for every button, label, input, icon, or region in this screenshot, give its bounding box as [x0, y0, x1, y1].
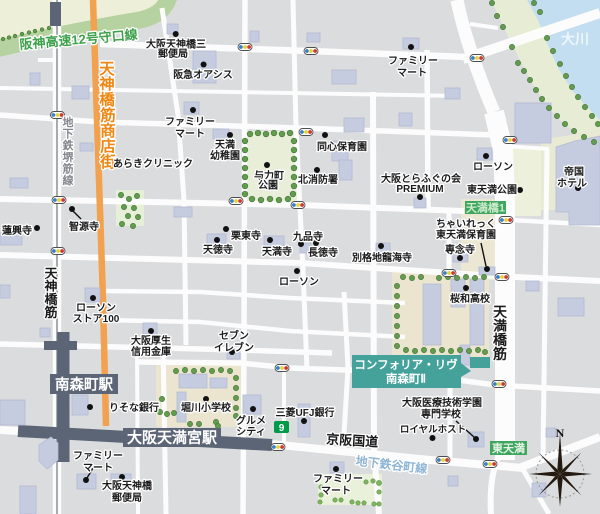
svg-text:ローソン: ローソン [279, 277, 319, 288]
svg-text:天徳寺: 天徳寺 [203, 243, 233, 256]
svg-text:ローソンストア100: ローソンストア100 [73, 303, 120, 325]
svg-text:京阪国道: 京阪国道 [326, 431, 379, 449]
svg-text:コンフォリア・リヴ: コンフォリア・リヴ [354, 358, 458, 372]
svg-text:天神橋筋商店街: 天神橋筋商店街 [99, 61, 116, 171]
svg-text:東天満公園: 東天満公園 [467, 183, 517, 196]
svg-text:九品寺: 九品寺 [292, 230, 323, 243]
svg-text:大阪天満宮駅: 大阪天満宮駅 [127, 429, 218, 447]
svg-text:三菱UFJ銀行: 三菱UFJ銀行 [276, 406, 335, 419]
svg-text:大阪厚生信用金庫: 大阪厚生信用金庫 [131, 334, 171, 358]
svg-text:阪急オアシス: 阪急オアシス [173, 68, 233, 81]
svg-text:N: N [556, 426, 565, 440]
svg-text:北消防署: 北消防署 [298, 173, 338, 186]
svg-text:智源寺: 智源寺 [69, 220, 99, 233]
svg-text:堀川小学校: 堀川小学校 [181, 401, 232, 414]
svg-text:ローソン: ローソン [473, 162, 513, 173]
svg-text:南森町Ⅱ: 南森町Ⅱ [386, 372, 426, 386]
svg-text:栗東寺: 栗東寺 [231, 229, 261, 242]
svg-text:長徳寺: 長徳寺 [308, 246, 338, 259]
svg-text:あらきクリニック: あらきクリニック [113, 157, 193, 170]
svg-text:大川: 大川 [561, 31, 589, 47]
svg-text:グルメシティ: グルメシティ [236, 414, 266, 438]
svg-text:天神橋筋: 天神橋筋 [43, 266, 58, 320]
svg-text:東天満: 東天満 [492, 441, 525, 455]
svg-text:別格地龍海寺: 別格地龍海寺 [351, 251, 412, 264]
svg-text:ロイヤルホスト: ロイヤルホスト [400, 425, 466, 436]
svg-text:9: 9 [279, 423, 285, 434]
svg-text:天満橋筋: 天満橋筋 [493, 304, 508, 362]
svg-text:りそな銀行: りそな銀行 [109, 401, 159, 414]
svg-text:同心保育園: 同心保育園 [317, 140, 367, 153]
svg-text:ちゃいれっく東天満保育園: ちゃいれっく東天満保育園 [436, 218, 496, 241]
svg-text:地下鉄堺筋線: 地下鉄堺筋線 [62, 115, 75, 187]
svg-text:天満寺: 天満寺 [262, 245, 292, 258]
svg-text:蓮興寺: 蓮興寺 [2, 224, 32, 237]
svg-text:セブンイレブン: セブンイレブン [214, 329, 254, 354]
svg-text:桜和高校: 桜和高校 [450, 292, 491, 305]
svg-text:天満橋1: 天満橋1 [466, 201, 505, 215]
svg-text:専念寺: 専念寺 [445, 243, 475, 256]
svg-text:南森町駅: 南森町駅 [55, 376, 113, 394]
